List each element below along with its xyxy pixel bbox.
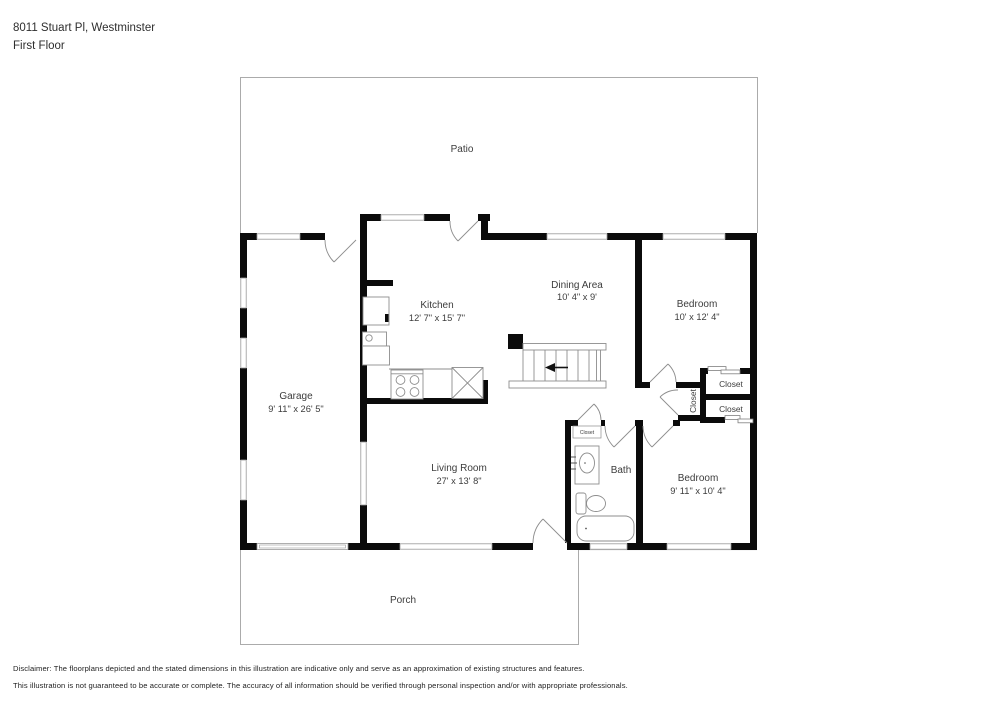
closet-bottom-right-label: Closet [719,404,743,414]
window [547,234,607,239]
burner [396,376,405,385]
refrigerator-handle [385,314,389,322]
kitchen-counter-left [363,346,390,365]
bedroom2-door [643,426,673,447]
small-closet-door [578,404,601,420]
patio-outline [241,78,758,234]
floor-title: First Floor [13,37,155,55]
address-title: 8011 Stuart Pl, Westminster [13,19,155,37]
window [663,234,725,239]
floorplan-page: 8011 Stuart Pl, Westminster First Floor [0,0,1000,707]
living-dims: 27' x 13' 8" [436,476,481,486]
bedroom2-dims: 9' 11" x 10' 4" [670,486,725,496]
disclaimer-line2: This illustration is not guaranteed to b… [13,681,628,690]
closet-bath-label: Closet [580,430,595,436]
stair-rail-top [523,344,606,351]
hall-closet-door [660,390,678,415]
plan-header: 8011 Stuart Pl, Westminster First Floor [13,19,155,55]
vanity-drain [584,462,586,464]
sliding-door [738,419,753,423]
disclaimer-line1: Disclaimer: The floorplans depicted and … [13,664,584,673]
kitchen-dims: 12' 7" x 15' 7" [409,313,465,323]
kitchen-faucet [366,335,372,341]
bath-label: Bath [611,465,632,476]
garage-label: Garage [279,391,313,402]
walls [240,214,757,550]
tub-drain [585,528,587,530]
dining-label: Dining Area [551,280,603,291]
bath-fixtures [571,426,634,541]
bedroom1-door [650,364,676,382]
window [241,278,246,308]
bedroom1-label: Bedroom [677,299,718,310]
window [257,234,300,239]
closet-top-right-label: Closet [719,379,743,389]
burner [410,376,419,385]
window [241,460,246,500]
outdoor-outlines [241,78,758,645]
sliding-door [721,370,740,374]
dining-dims: 10' 4" x 9' [557,292,597,302]
porch-label: Porch [390,595,416,606]
front-door [533,519,567,543]
garage-dims: 9' 11" x 26' 5" [268,404,323,414]
kitchen-label: Kitchen [420,300,453,311]
window [241,338,246,368]
vanity-basin [580,453,595,473]
stair-newel [508,334,523,349]
patio-label: Patio [451,144,474,155]
floorplan-svg: Patio Porch Garage 9' 11" x 26' 5" Kitch… [0,0,1000,707]
stair-direction-arrow [545,363,568,372]
toilet-bowl [587,496,606,512]
bath-door [605,426,635,447]
opening [361,442,366,505]
door-swings [325,221,678,543]
staircase [508,334,606,388]
window [590,544,627,549]
burner [396,388,405,397]
room-labels: Patio Porch Garage 9' 11" x 26' 5" Kitch… [268,144,743,606]
toilet-tank [576,493,586,514]
window [381,215,424,220]
garage-door-inner [260,545,346,548]
closet-hall-label: Closet [688,388,698,412]
kitchen-door [450,221,478,241]
bedroom2-label: Bedroom [678,473,719,484]
window [667,544,731,549]
living-label: Living Room [431,463,487,474]
bedroom1-dims: 10' x 12' 4" [674,312,719,322]
window [400,544,492,549]
garage-entry-door [325,240,356,262]
burner [410,388,419,397]
stair-rail-bottom [509,381,606,388]
stair-treads [523,350,601,381]
